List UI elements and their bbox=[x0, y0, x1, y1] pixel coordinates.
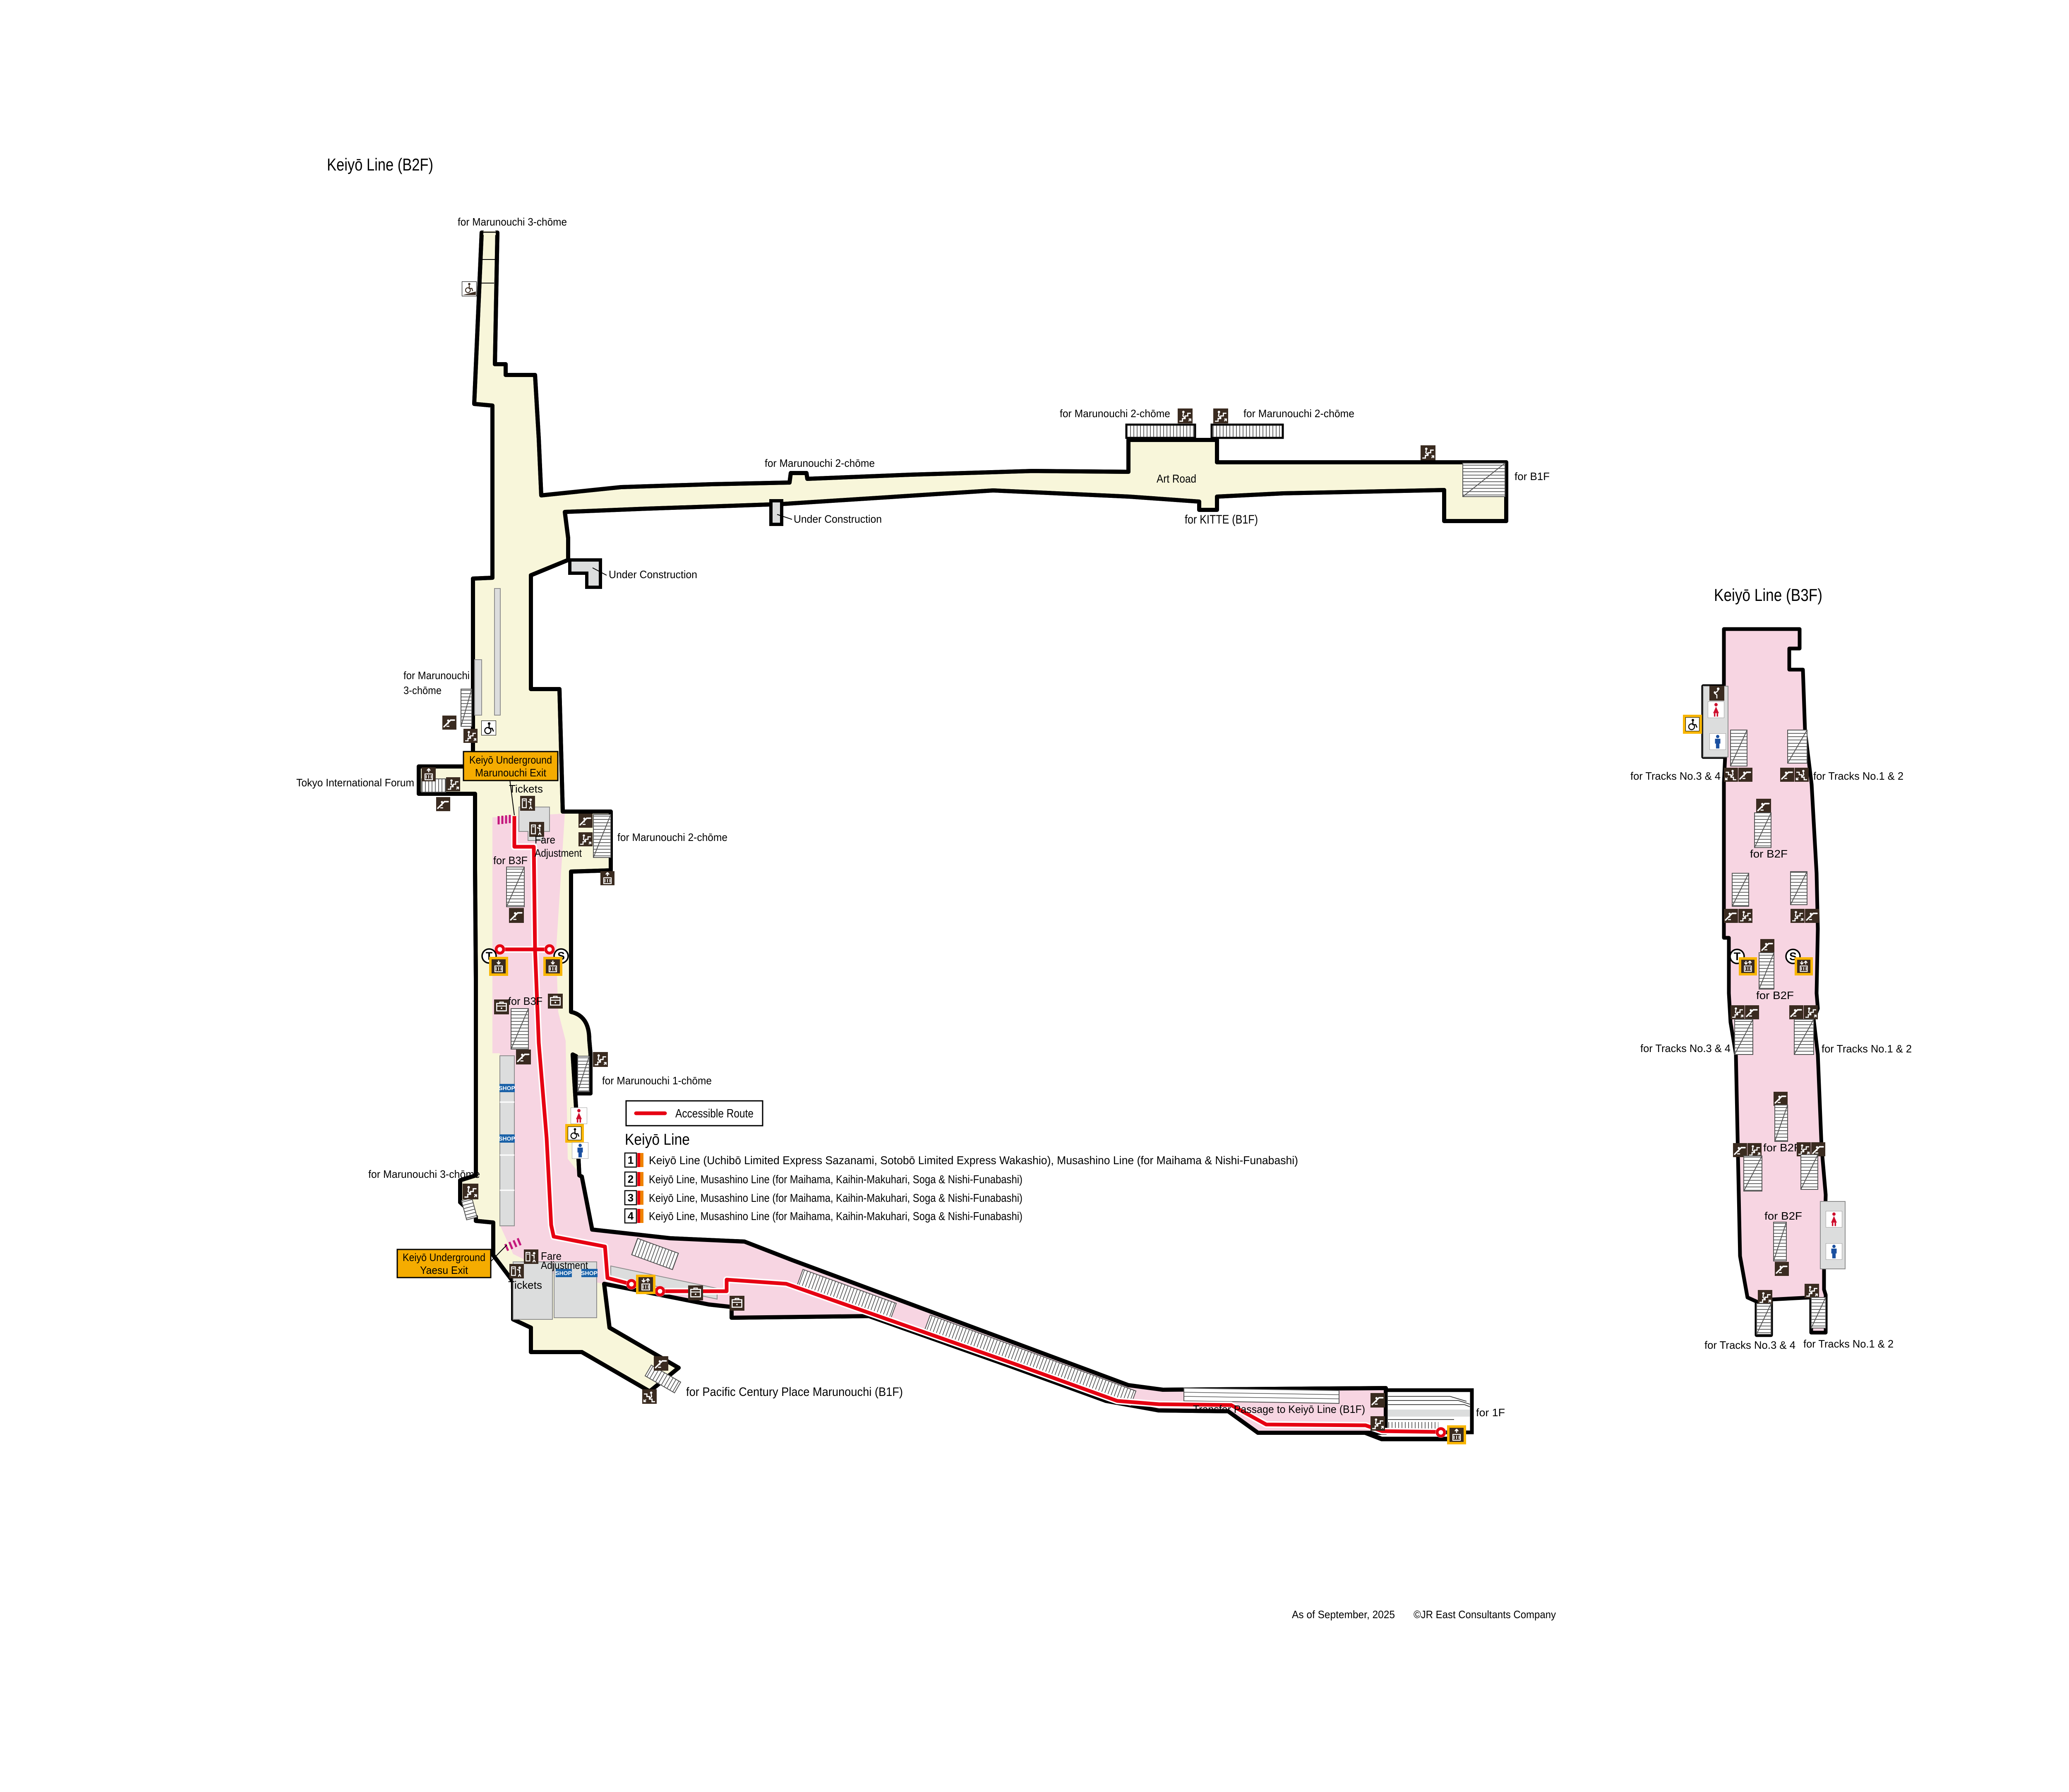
svg-text:Accessible Route: Accessible Route bbox=[675, 1107, 754, 1120]
svg-text:for Tracks No.1 & 2: for Tracks No.1 & 2 bbox=[1813, 770, 1903, 782]
svg-text:Tokyo International Forum: Tokyo International Forum bbox=[296, 776, 414, 789]
svg-text:for Tracks No.1 & 2: for Tracks No.1 & 2 bbox=[1822, 1043, 1912, 1055]
svg-text:Keiyō Line: Keiyō Line bbox=[625, 1131, 690, 1148]
svg-text:Yaesu Exit: Yaesu Exit bbox=[420, 1264, 468, 1276]
svg-text:©JR East Consultants Company: ©JR East Consultants Company bbox=[1414, 1608, 1556, 1621]
svg-text:Keiyō Line (B3F): Keiyō Line (B3F) bbox=[1714, 585, 1822, 605]
svg-text:SHOP: SHOP bbox=[499, 1135, 515, 1142]
svg-text:for Marunouchi 2-chōme: for Marunouchi 2-chōme bbox=[1060, 407, 1170, 420]
svg-text:1: 1 bbox=[628, 1154, 634, 1166]
svg-text:for Marunouchi 3-chōme: for Marunouchi 3-chōme bbox=[458, 216, 567, 228]
svg-text:3-chōme: 3-chōme bbox=[403, 684, 442, 697]
svg-text:Tickets: Tickets bbox=[509, 783, 543, 795]
svg-text:for KITTE (B1F): for KITTE (B1F) bbox=[1185, 513, 1258, 526]
svg-text:Keiyō Line, Musashino Line (fo: Keiyō Line, Musashino Line (for Maihama,… bbox=[649, 1191, 1022, 1204]
svg-text:Tickets: Tickets bbox=[508, 1279, 542, 1291]
svg-text:Under Construction: Under Construction bbox=[609, 568, 697, 581]
svg-text:SHOP: SHOP bbox=[499, 1085, 515, 1091]
svg-text:3: 3 bbox=[628, 1191, 634, 1204]
svg-text:Keiyō Line, Musashino Line (fo: Keiyō Line, Musashino Line (for Maihama,… bbox=[649, 1210, 1022, 1223]
svg-text:for Marunouchi 2-chōme: for Marunouchi 2-chōme bbox=[1243, 407, 1354, 420]
svg-text:for Tracks No.3 & 4: for Tracks No.3 & 4 bbox=[1640, 1042, 1731, 1055]
svg-text:for Marunouchi 3-chōme: for Marunouchi 3-chōme bbox=[368, 1168, 480, 1180]
svg-text:for B2F: for B2F bbox=[1764, 1210, 1802, 1222]
svg-text:for Tracks No.3 & 4: for Tracks No.3 & 4 bbox=[1630, 770, 1721, 782]
svg-text:for Tracks No.1 & 2: for Tracks No.1 & 2 bbox=[1803, 1338, 1894, 1350]
svg-text:Keiyō Underground: Keiyō Underground bbox=[403, 1251, 485, 1264]
svg-text:2: 2 bbox=[628, 1173, 634, 1185]
svg-text:Marunouchi Exit: Marunouchi Exit bbox=[475, 766, 547, 779]
svg-text:for Pacific Century Place Maru: for Pacific Century Place Marunouchi (B1… bbox=[686, 1385, 903, 1399]
svg-text:for B3F: for B3F bbox=[493, 854, 528, 867]
svg-text:Fare: Fare bbox=[535, 834, 555, 846]
svg-text:Adjustment: Adjustment bbox=[541, 1259, 588, 1271]
svg-text:for Marunouchi 2-chōme: for Marunouchi 2-chōme bbox=[617, 831, 727, 843]
svg-text:for B2F: for B2F bbox=[1756, 989, 1794, 1002]
svg-text:for Marunouchi 1-chōme: for Marunouchi 1-chōme bbox=[602, 1074, 712, 1087]
svg-text:As of September, 2025: As of September, 2025 bbox=[1292, 1608, 1395, 1621]
svg-text:Transfer Passage to Keiyō Line: Transfer Passage to Keiyō Line (B1F) bbox=[1193, 1403, 1365, 1415]
svg-text:Keiyō Line (Uchibō Limited Exp: Keiyō Line (Uchibō Limited Express Sazan… bbox=[649, 1154, 1298, 1167]
svg-text:Art Road: Art Road bbox=[1157, 472, 1196, 485]
svg-text:for B3F: for B3F bbox=[508, 995, 542, 1007]
svg-text:Keiyō Line (B2F): Keiyō Line (B2F) bbox=[327, 155, 433, 174]
svg-text:Under Construction: Under Construction bbox=[794, 513, 882, 525]
svg-text:for Marunouchi 2-chōme: for Marunouchi 2-chōme bbox=[765, 457, 875, 469]
svg-text:for B2F: for B2F bbox=[1763, 1141, 1801, 1154]
svg-text:4: 4 bbox=[628, 1210, 634, 1222]
svg-text:for Marunouchi: for Marunouchi bbox=[403, 669, 470, 682]
svg-text:for 1F: for 1F bbox=[1476, 1406, 1505, 1419]
svg-text:Adjustment: Adjustment bbox=[535, 847, 582, 859]
svg-text:for Tracks No.3 & 4: for Tracks No.3 & 4 bbox=[1704, 1339, 1795, 1351]
svg-text:for B1F: for B1F bbox=[1515, 470, 1550, 483]
svg-text:for B2F: for B2F bbox=[1750, 848, 1788, 860]
svg-text:Keiyō Line, Musashino Line (fo: Keiyō Line, Musashino Line (for Maihama,… bbox=[649, 1173, 1022, 1186]
svg-text:Keiyō Underground: Keiyō Underground bbox=[469, 754, 552, 766]
